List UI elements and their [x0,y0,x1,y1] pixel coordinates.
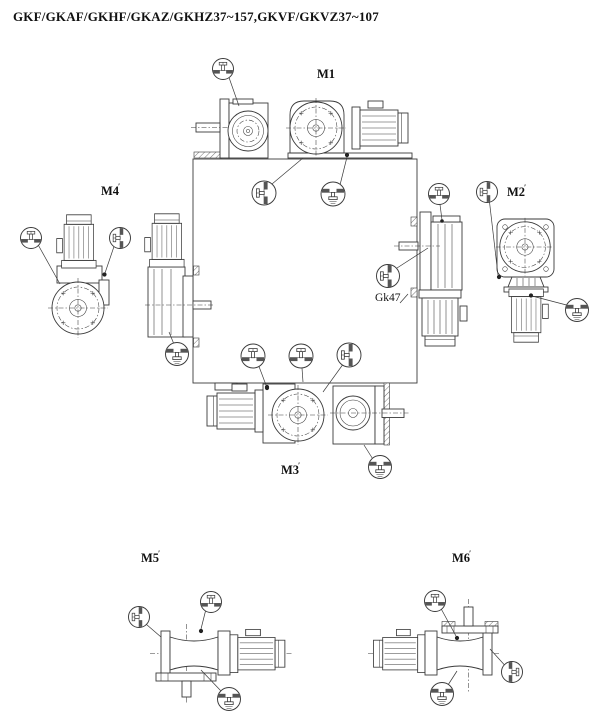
motor [509,289,548,342]
motor [207,384,263,432]
motor [419,290,467,346]
m4-gear-unit-front-view [48,215,109,338]
motor [373,629,425,672]
m3-label-mark: ′ [298,461,300,470]
m3-gear-unit-side-view [330,383,409,445]
page-title: GKF/GKAF/GKHF/GKAZ/GKHZ37~157,GKVF/GKVZ3… [13,9,379,24]
motor [352,101,408,149]
m3-label: M3 [281,463,299,477]
m1-assembly-group: M1 [191,67,412,158]
plug-callouts [21,59,589,711]
m2-gear-unit-side-view [394,212,467,346]
motor [230,629,285,672]
m5-label-mark: ′ [158,549,160,558]
m4-label-mark: ′ [118,182,120,191]
m4-gear-unit-side-view [145,214,215,347]
m6-assembly-group: M6 ′ [368,549,500,692]
m1-label: M1 [317,67,335,81]
m6-gear-unit-side-view [368,599,500,692]
m2-label: M2 [507,185,525,199]
m6-label-mark: ′ [469,549,471,558]
m2-assembly-group: M2 ′ [394,183,554,346]
m1-gear-unit-side-view [191,99,268,158]
m6-label: M6 [452,551,470,565]
output-shaft [464,607,473,626]
m1-gear-unit-front-view [286,98,412,158]
output-shaft [182,681,191,697]
mounting-position-diagram-page: GKF/GKAF/GKHF/GKAZ/GKHZ37~157,GKVF/GKVZ3… [0,0,600,724]
m2-label-mark: ′ [524,183,526,192]
m3-gear-unit-front-view [207,383,328,445]
m5-assembly-group: M5 ′ [141,549,292,704]
motor [145,214,184,267]
m4-assembly-group: M4 ′ [48,182,215,347]
motor [57,215,96,268]
gk47-label: Gk47 [375,292,401,304]
m5-label: M5 [141,551,159,565]
m4-label: M4 [101,184,120,198]
m2-gear-unit-front-view [496,218,554,342]
mounting-positions-diagram: GKF/GKAF/GKHF/GKAZ/GKHZ37~157,GKVF/GKVZ3… [0,0,600,724]
